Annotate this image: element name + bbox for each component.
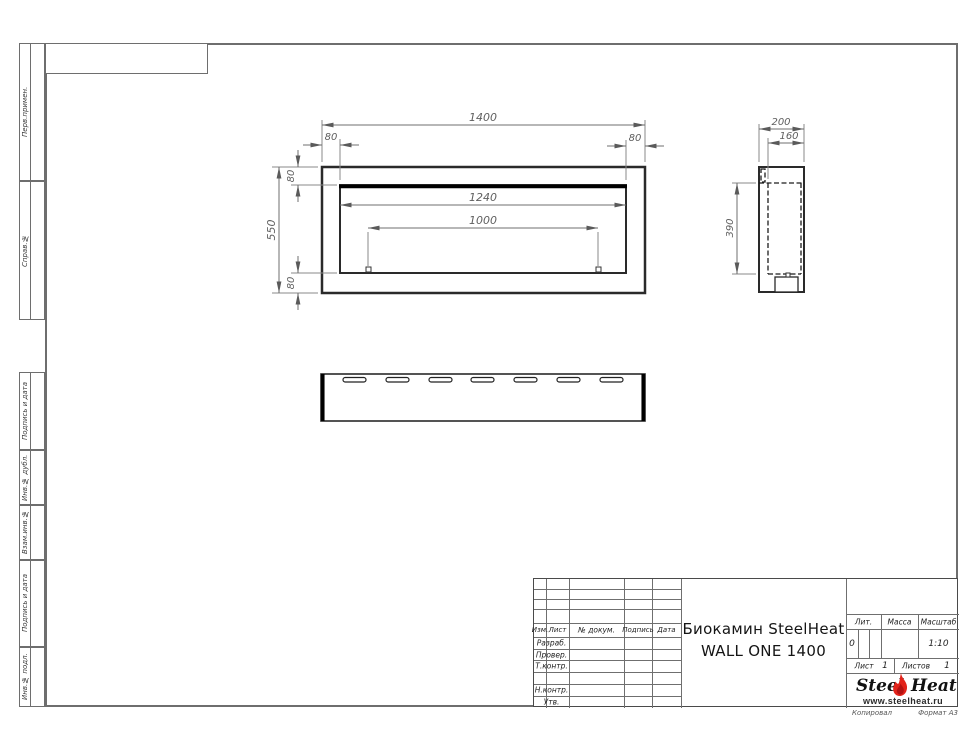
drawing-sheet: 1400 80 80 550 80 80 1240 1000 [0, 0, 970, 749]
tb-line [534, 599, 681, 600]
tb-line [869, 629, 870, 658]
margin-graph-inv-dubl: Инв.№ дубл. [19, 450, 45, 505]
tb-row-prover: Провер. [536, 650, 567, 659]
tb-col-data: Дата [657, 626, 675, 634]
tb-lit-value: 0 [849, 639, 855, 649]
tb-line [846, 629, 959, 630]
logo-heat-text: Heat [911, 676, 957, 696]
margin-graph-inv-podl: Инв.№ подл. [19, 647, 45, 707]
tb-col-doc: № докум. [578, 626, 615, 635]
logo-site-url: www.steelheat.ru [863, 696, 943, 706]
title-block: Изм. Лист № докум. Подпись Дата Разраб. … [533, 578, 958, 707]
margin-graph-sprav-no: Справ.№ [19, 181, 45, 320]
tb-line [858, 629, 859, 658]
tb-line [846, 614, 959, 615]
margin-label: Взам.инв.№ [20, 506, 30, 559]
tb-listov-value: 1 [944, 661, 950, 671]
tb-col-list: Лист [549, 626, 567, 634]
margin-label: Инв.№ дубл. [20, 451, 30, 504]
tb-list-label: Лист [854, 661, 873, 670]
divider [30, 182, 31, 319]
tb-line [534, 609, 681, 610]
tb-line [534, 672, 681, 673]
tb-masshtab-label: Масштаб [921, 617, 957, 626]
margin-label: Инв.№ подл. [20, 648, 30, 706]
flame-icon [892, 673, 909, 697]
tb-line [534, 623, 681, 624]
margin-label: Перв.примен. [20, 44, 30, 180]
footer-copied: Копировал [837, 709, 907, 717]
tb-line [881, 614, 882, 658]
tb-line [534, 589, 681, 590]
margin-graph-podpis-data-1: Подпись и дата [19, 372, 45, 450]
margin-graph-podpis-data-2: Подпись и дата [19, 560, 45, 647]
tb-row-tkontr: Т.контр. [535, 662, 568, 671]
tb-listov-label: Листов [902, 661, 930, 670]
divider [30, 373, 31, 449]
top-left-stamp-box [45, 43, 208, 74]
tb-row-nkontr: Н.контр. [535, 686, 569, 695]
tb-masshtab-value: 1:10 [928, 639, 948, 649]
tb-line [894, 658, 895, 673]
divider [30, 44, 31, 180]
tb-line [846, 579, 847, 708]
margin-label: Справ.№ [20, 182, 30, 319]
divider [30, 451, 31, 504]
margin-graph-vzam-inv: Взам.инв.№ [19, 505, 45, 560]
tb-row-utv: Утв. [544, 698, 560, 707]
divider [30, 648, 31, 706]
tb-massa-label: Масса [888, 617, 912, 626]
product-title-line1: Биокамин SteelHeat [682, 620, 844, 638]
margin-label: Подпись и дата [20, 561, 30, 646]
tb-list-value: 1 [882, 661, 888, 671]
divider [30, 506, 31, 559]
divider [30, 561, 31, 646]
tb-lit-label: Лит. [855, 617, 872, 626]
margin-label: Подпись и дата [20, 373, 30, 449]
tb-row-razrab: Разраб. [537, 639, 566, 648]
tb-col-podpis: Подпись [622, 626, 654, 634]
tb-line [846, 658, 959, 659]
tb-col-izm: Изм. [532, 626, 548, 634]
tb-line [681, 579, 682, 708]
footer-format: Формат А3 [903, 709, 970, 717]
margin-graph-perv-primen: Перв.примен. [19, 43, 45, 181]
tb-line [918, 614, 919, 658]
product-title-line2: WALL ONE 1400 [701, 642, 826, 660]
